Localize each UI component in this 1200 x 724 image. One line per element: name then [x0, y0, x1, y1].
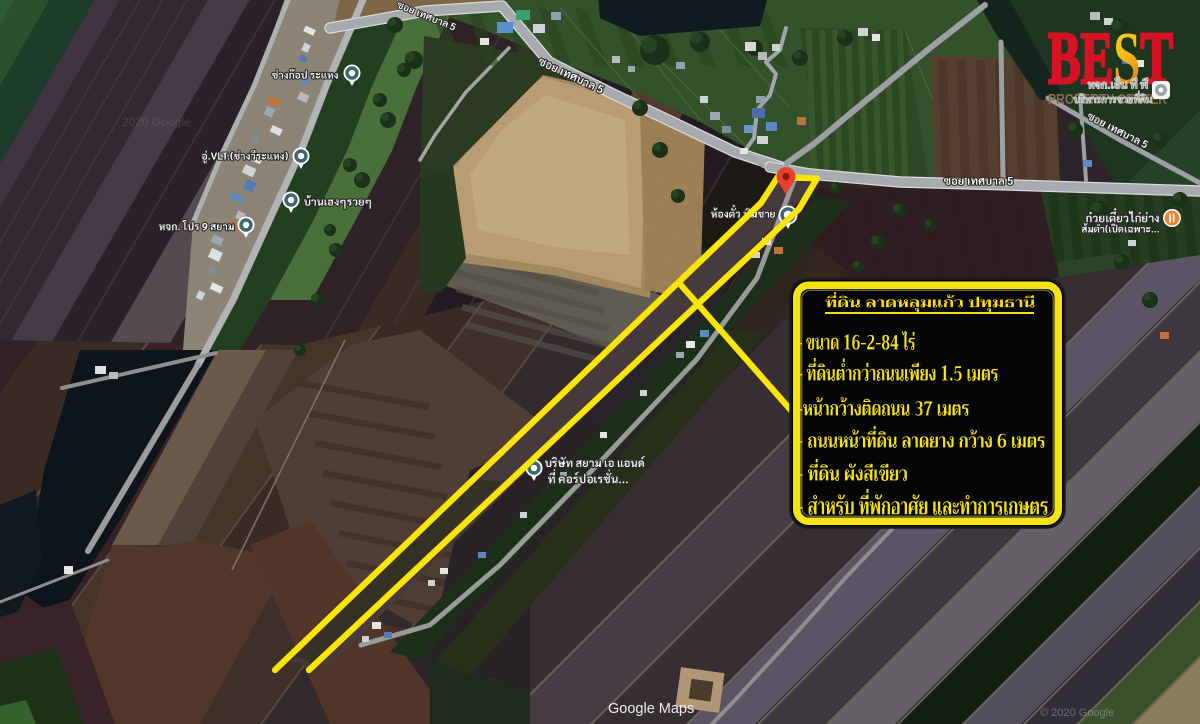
svg-text:Google Maps: Google Maps	[608, 701, 694, 717]
svg-text:© 2020 Google: © 2020 Google	[1040, 707, 1114, 719]
svg-text:PROPERTY CENTER: PROPERTY CENTER	[1048, 91, 1167, 108]
svg-text:2020 Google: 2020 Google	[122, 115, 191, 129]
